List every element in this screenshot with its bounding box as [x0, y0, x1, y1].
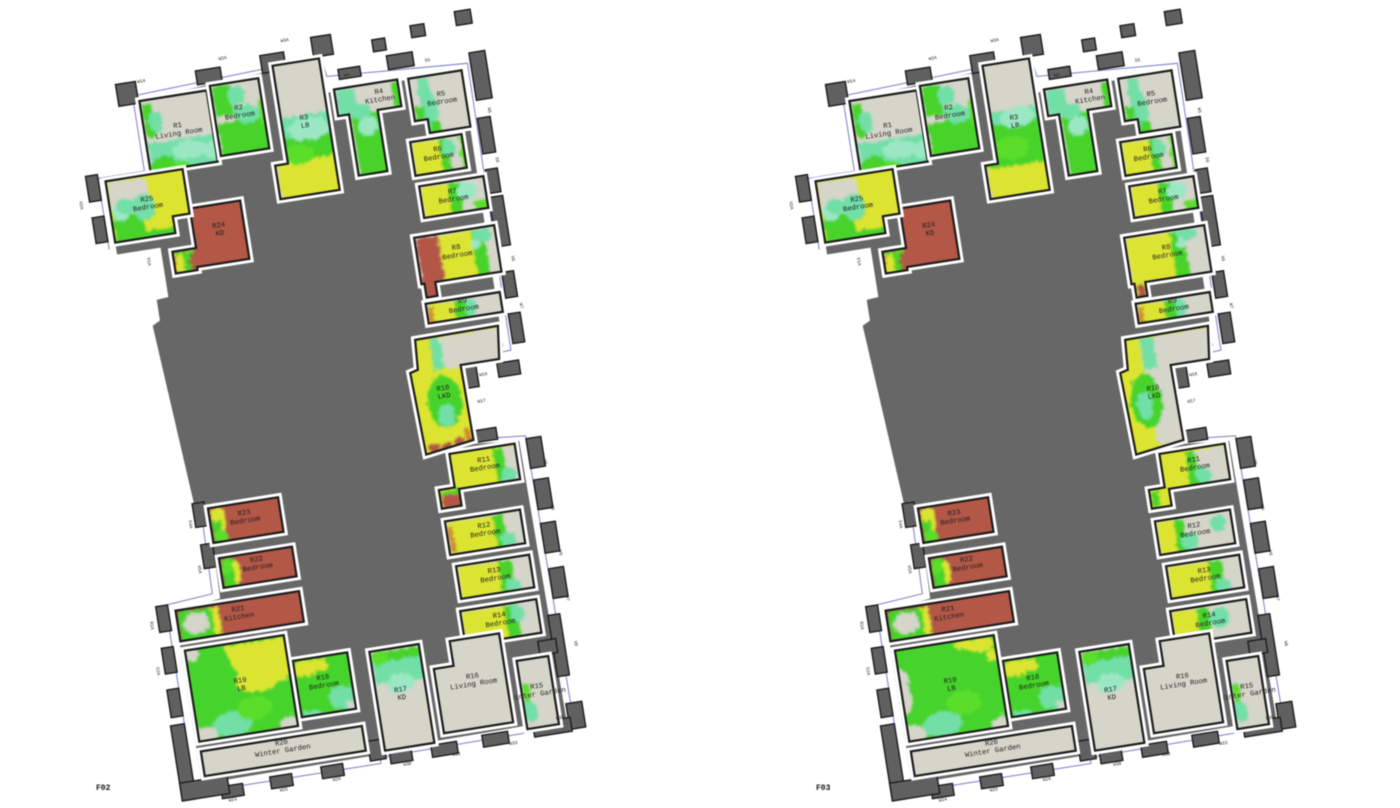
svg-text:R10LKD: R10LKD — [436, 384, 451, 402]
svg-text:F02: F02 — [96, 784, 111, 793]
svg-text:R10LKD: R10LKD — [1146, 384, 1161, 402]
svg-text:F03: F03 — [816, 784, 831, 793]
